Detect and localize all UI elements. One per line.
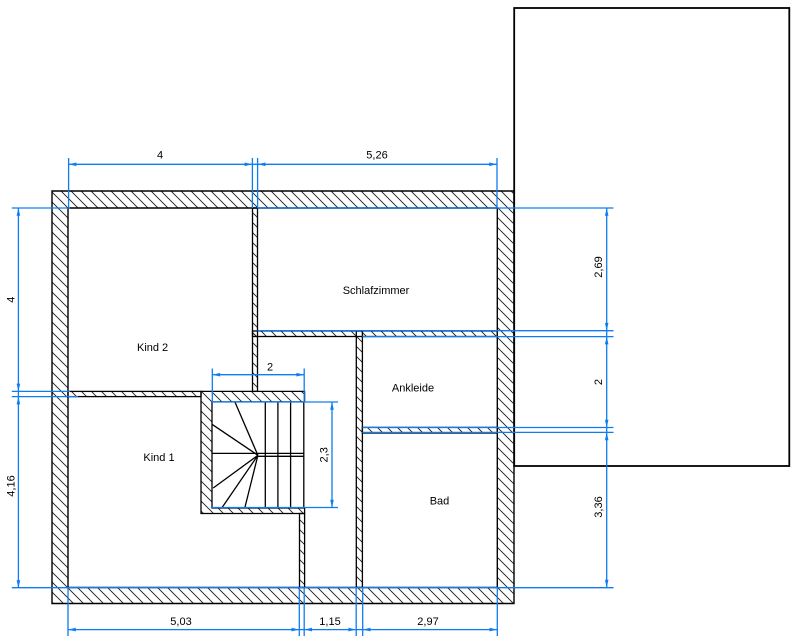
svg-text:Kind 2: Kind 2 [137, 342, 168, 354]
svg-text:5,03: 5,03 [170, 616, 191, 628]
svg-text:4,16: 4,16 [6, 475, 18, 496]
svg-text:2,3: 2,3 [319, 447, 331, 462]
svg-text:2,69: 2,69 [593, 256, 605, 277]
svg-text:4: 4 [157, 149, 163, 161]
svg-text:1,15: 1,15 [319, 616, 340, 628]
svg-text:5,26: 5,26 [366, 149, 387, 161]
svg-text:3,36: 3,36 [593, 496, 605, 517]
svg-text:2,97: 2,97 [417, 616, 438, 628]
svg-text:Bad: Bad [430, 496, 450, 508]
svg-text:Kind 1: Kind 1 [143, 452, 174, 464]
svg-text:2: 2 [593, 379, 605, 385]
svg-text:4: 4 [6, 297, 18, 303]
svg-text:Ankleide: Ankleide [392, 383, 434, 395]
svg-text:Schlafzimmer: Schlafzimmer [343, 285, 410, 297]
svg-text:2: 2 [267, 362, 273, 374]
